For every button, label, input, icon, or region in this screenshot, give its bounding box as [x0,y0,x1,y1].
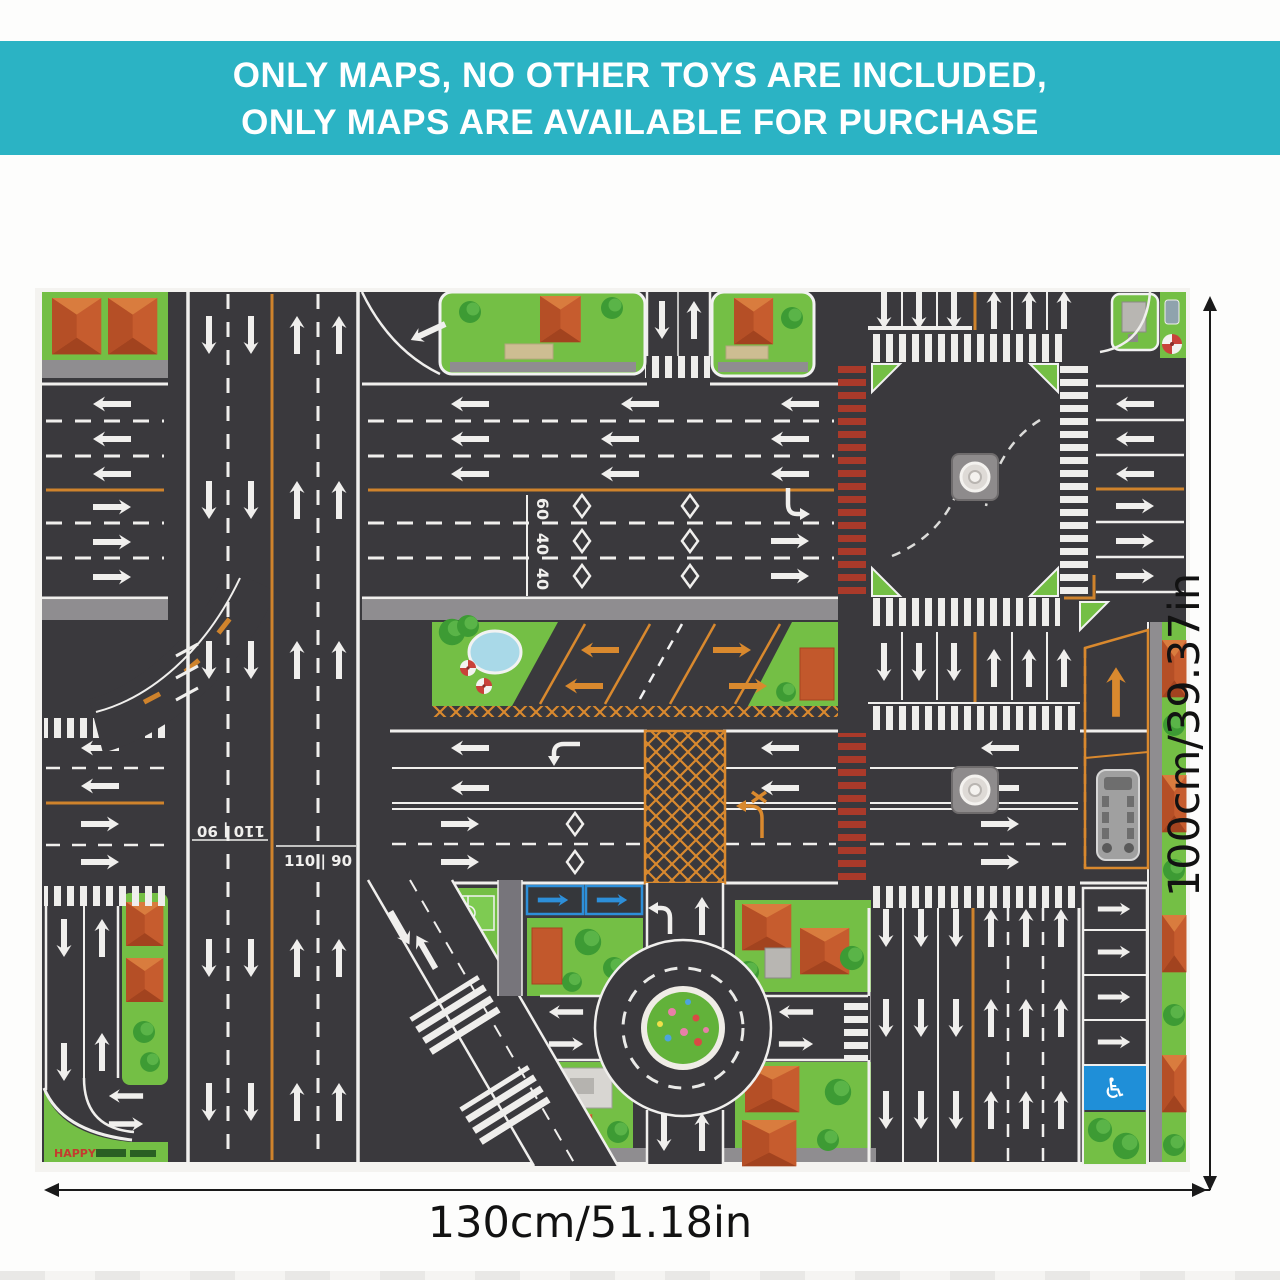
height-dimension-label: 100cm/39.37in [1160,565,1206,905]
block-top-center [440,292,645,374]
speed-limit-numbers: 60 40 40 [533,498,552,590]
wheelchair-icon: ♿ [1102,1072,1127,1105]
svg-text:40: 40 [533,568,552,590]
svg-text:40: 40 [533,533,552,555]
manhole-icon-2 [952,767,998,813]
manhole-icon [952,454,998,500]
svg-text:110 | 90: 110 | 90 [197,821,265,840]
brand-logo: HAPPY [54,1147,97,1160]
crosswalk-south [868,598,1060,626]
svg-text:110 | 90: 110 | 90 [284,852,352,871]
orange-building [800,648,834,700]
left-green-island [122,893,168,1085]
block-top-left [42,292,168,378]
width-dimension-line [52,1189,1210,1191]
arrow-left-icon [44,1183,59,1197]
red-crosswalk-lower [838,733,866,883]
top-notice-banner: ONLY MAPS, NO OTHER TOYS ARE INCLUDED, O… [0,41,1280,155]
bus-icon [1097,770,1139,860]
crosswalk-west-red [838,366,866,594]
yellow-box-junction [645,731,725,883]
arrow-right-icon [1192,1183,1207,1197]
crosswalk-north [868,334,1064,362]
play-mat-product-image: HAPPY [35,288,1190,1172]
pond [469,631,521,673]
arrow-up-icon [1203,296,1217,311]
next-image-sliver [0,1271,1280,1280]
width-dimension-label: 130cm/51.18in [420,1198,760,1248]
banner-line-2: ONLY MAPS ARE AVAILABLE FOR PURCHASE [0,99,1280,146]
svg-text:60: 60 [533,498,552,520]
crosswalk-east [1060,366,1088,594]
banner-line-1: ONLY MAPS, NO OTHER TOYS ARE INCLUDED, [0,52,1280,99]
block-top-right [712,292,814,376]
